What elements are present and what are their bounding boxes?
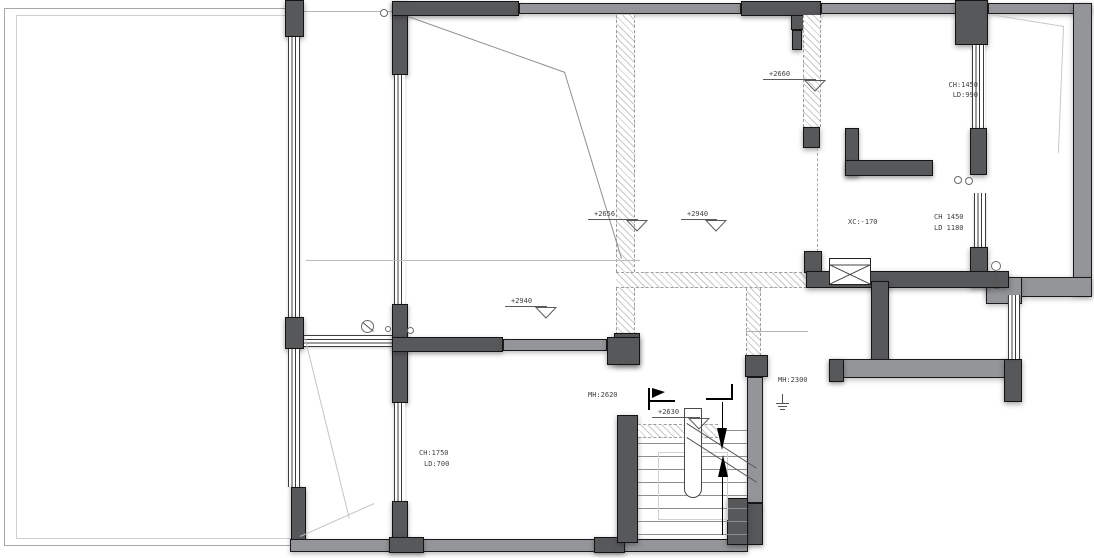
section-mark-stem [731,384,733,400]
demolished-wall [803,15,821,127]
window-spec-label: CH:1450 [928,81,978,90]
wall [829,359,1009,378]
small-circle [991,261,1001,271]
wall-top [821,3,957,14]
elevation-marker: +2656 [588,219,638,220]
elevation-triangle-icon [804,80,826,92]
wall-centerline [817,148,819,252]
window-spec-label: LD 1180 [934,224,964,233]
column-stub [792,30,802,50]
elevation-value: +2656 [594,210,615,218]
section-mark-line [706,398,733,400]
opening-line [746,331,808,332]
window-spec-label: LD:700 [424,460,449,469]
stair-wall-left [617,415,638,543]
stair-arrow-stem [722,477,723,535]
stair-arrow-stem [722,402,723,428]
column [285,317,304,349]
wall [392,304,408,403]
ground-symbol [780,409,785,410]
ground-symbol [782,394,783,403]
column [745,355,768,377]
terrace-outline-inner [16,15,292,539]
window-spec-label: CH 1450 [934,213,964,222]
column [804,251,822,273]
column [291,487,306,540]
ceiling-slope-line [408,16,566,73]
ground-symbol [778,406,787,407]
elevation-triangle-icon [705,220,727,232]
window-horizontal [304,335,393,347]
column [955,0,988,45]
ground-symbol [996,271,997,282]
wall [392,337,503,352]
wall-bottom [290,539,748,552]
ceiling-slope-line [564,72,622,259]
ceiling-edge-line [306,260,640,261]
column [389,537,424,553]
wall [871,281,889,363]
section-flag-icon [652,388,665,398]
demolished-wall [616,288,635,335]
window-wall [288,37,300,317]
slope-line [300,503,374,537]
elevation-value: +2940 [687,210,708,218]
door-hinge-circle [965,177,973,185]
elevation-triangle-icon [688,418,710,430]
sunken-floor-label: XC:-170 [848,218,878,227]
elevation-triangle-icon [535,307,557,319]
window-spec-label: LD:990 [928,91,978,100]
window-spec-label: CH:1750 [419,449,449,458]
wall-divider [845,160,933,176]
wall-top [519,3,741,14]
wall-top [741,1,821,16]
door-leaf-line [990,14,1064,27]
elevation-value: +2940 [511,297,532,305]
elevation-value: +2660 [769,70,790,78]
demolished-wall [616,15,635,272]
stair-arrow-down-icon [717,428,727,450]
wall [970,128,987,175]
window-wall [394,403,405,501]
slope-line [304,336,350,519]
shaft-box [829,258,871,285]
window-wall [974,193,986,247]
demolished-wall [616,272,807,288]
window-wall [394,75,405,304]
wall [503,339,607,351]
wall [607,337,640,365]
door-height-label: MH:2620 [588,391,618,400]
top-edge-line [292,11,393,12]
section-mark-stem [648,388,650,410]
stair-wall-right [747,503,763,545]
ground-symbol [992,285,1001,286]
window-wall [288,349,300,487]
floor-plan: +2660 +2656 +2940 +2940 +2630 CH:1450 LD… [0,0,1094,558]
column [803,127,820,148]
wall-cap [1004,359,1022,402]
wall-top [392,1,519,16]
ground-symbol [990,282,1003,283]
elevation-marker: +2940 [505,306,547,307]
elevation-marker: +2630 [652,417,700,418]
door-height-label: MH:2300 [778,376,808,385]
ground-symbol [776,403,789,404]
drain-slash [362,322,373,332]
section-mark-line [648,400,675,402]
wall-cap [829,359,844,382]
window-wall [1008,295,1020,359]
column [285,0,304,37]
demolished-wall [746,288,761,356]
small-circle [407,327,414,334]
small-circle [385,326,391,332]
wall-right [1073,3,1092,295]
elevation-triangle-icon [626,220,648,232]
stair-arrow-up-icon [718,455,728,477]
stair-wall-right [747,377,763,503]
door-leaf-line [1058,26,1064,153]
shaft-x-icon [830,259,870,284]
column-bubble [380,9,388,17]
door-hinge-circle [954,176,962,184]
elevation-marker: +2940 [681,219,717,220]
ground-symbol [994,288,999,289]
elevation-marker: +2660 [763,79,816,80]
floor-drain-icon [361,320,374,333]
elevation-value: +2630 [658,408,679,416]
